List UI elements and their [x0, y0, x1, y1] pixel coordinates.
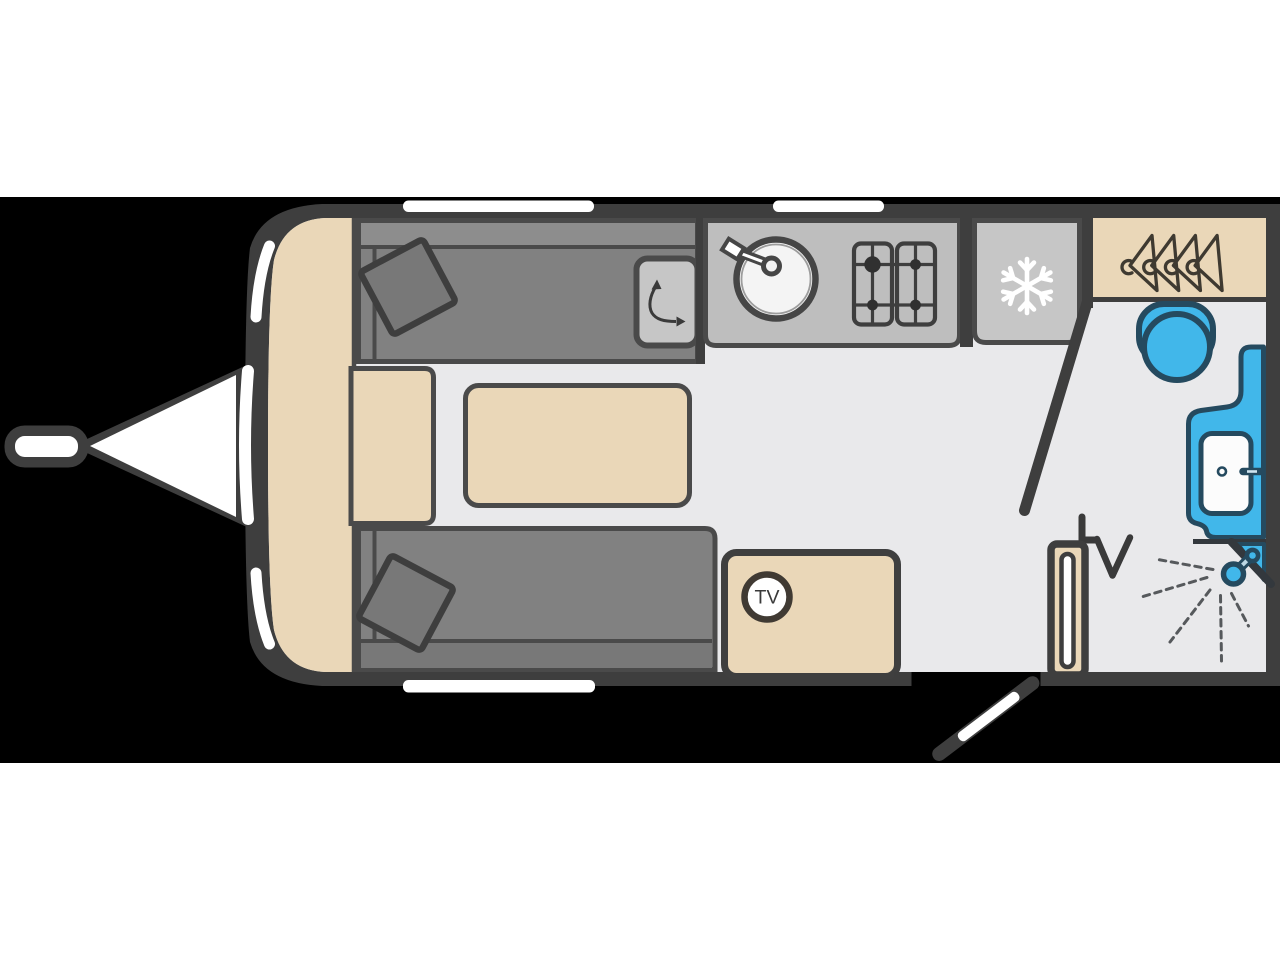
- svg-text:TV: TV: [755, 587, 780, 609]
